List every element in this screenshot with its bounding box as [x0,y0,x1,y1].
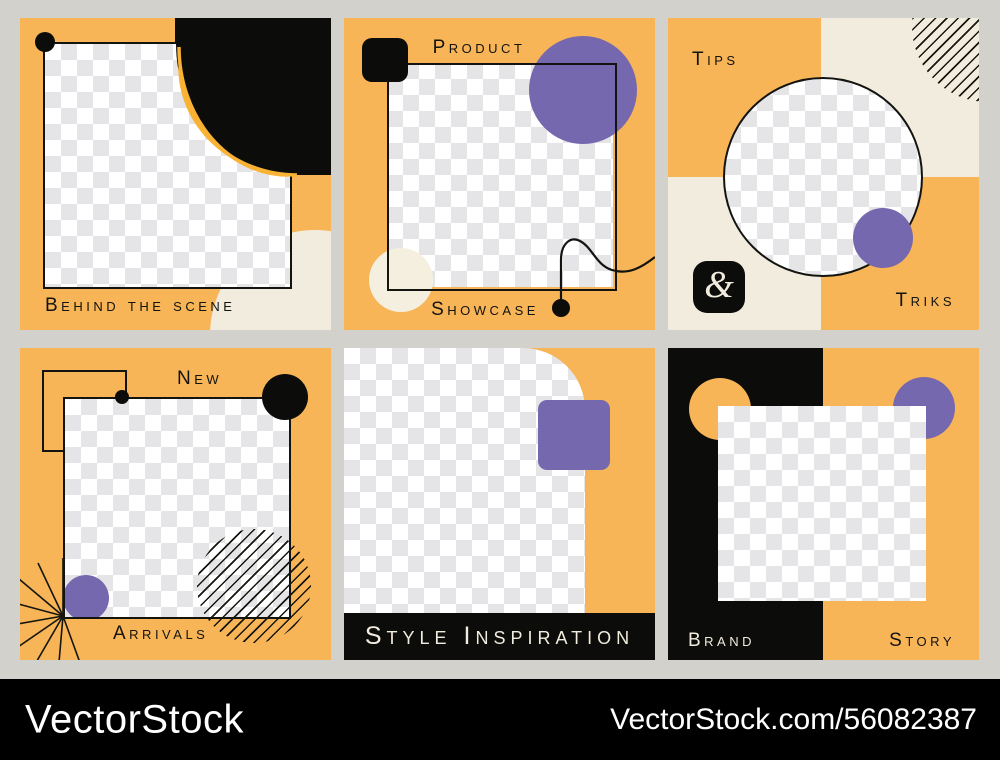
template-card-style-inspiration: Style Inspiration [344,348,655,660]
card-caption-top: Product [344,38,614,57]
card-caption-bottom: Showcase [344,300,626,319]
photo-placeholder-area [344,348,585,613]
template-card-tips-triks: & Tips Triks [668,18,979,330]
card-caption-left: Brand [688,631,755,650]
template-card-behind-the-scene: Behind the scene [20,18,331,330]
hatch-pattern-decoration [197,529,311,643]
card-caption: Style Inspiration [365,624,634,649]
card-caption-top: New [177,369,222,388]
photo-placeholder-frame [718,406,926,601]
corner-arc-decoration [20,18,331,330]
caption-bar: Style Inspiration [344,613,655,660]
squiggle-line-decoration [344,18,655,330]
card-caption-bottom: Arrivals [113,624,208,643]
template-card-brand-story: Brand Story [668,348,979,660]
card-caption-bottom: Triks [896,291,955,310]
card-caption: Behind the scene [45,296,235,315]
ampersand-icon: & [693,261,745,313]
watermark-brand: VectorStock [25,697,244,742]
purple-circle-decoration [853,208,913,268]
template-card-product-showcase: Product Showcase [344,18,655,330]
corner-dot-decoration [35,32,55,52]
ampersand-glyph: & [704,266,734,304]
stock-image-canvas: Behind the scene Product Showcase & Tips… [0,0,1000,760]
watermark-bar: VectorStock VectorStock.com/56082387 [0,679,1000,760]
template-card-new-arrivals: New Arrivals [20,348,331,660]
watermark-url: VectorStock.com/56082387 [610,703,977,737]
card-caption-right: Story [889,631,955,650]
hatch-pattern-decoration [912,18,979,102]
card-caption-top: Tips [692,50,739,69]
purple-rounded-square-decoration [538,400,610,470]
